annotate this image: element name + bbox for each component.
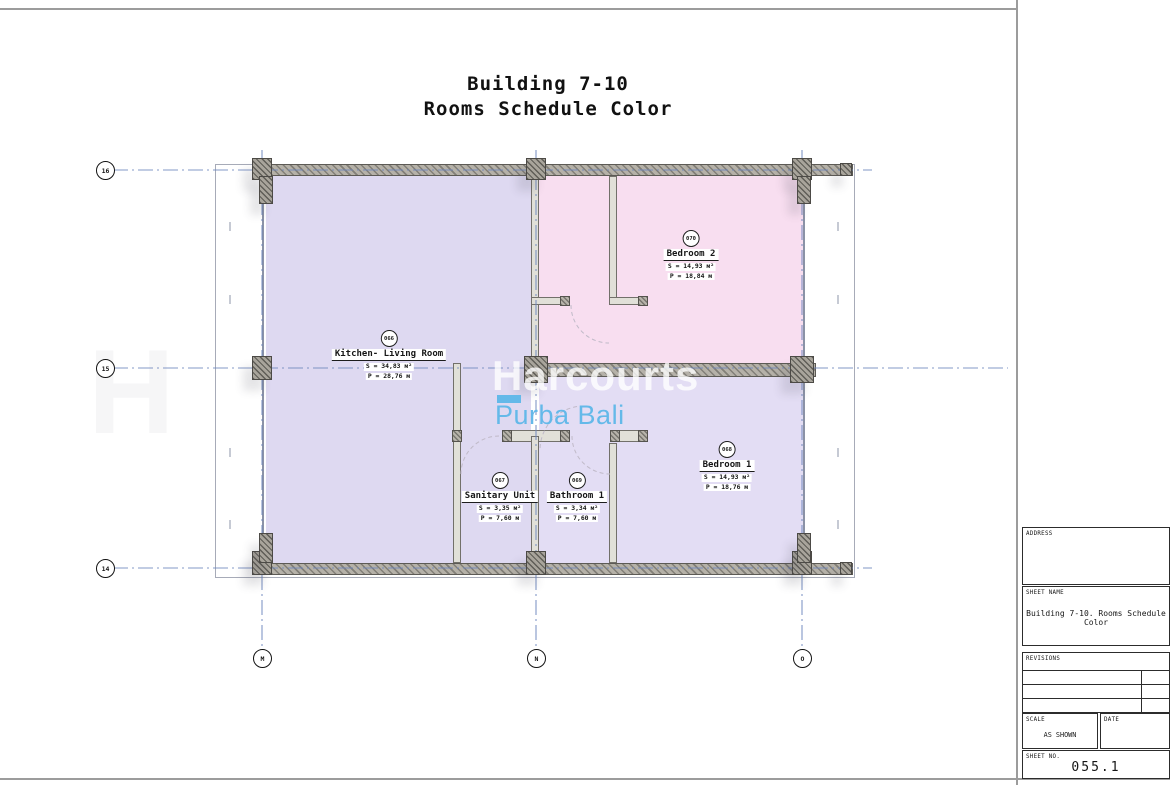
room-perimeter: P = 18,84 м — [668, 273, 714, 281]
grid-bubble-M-label: M — [261, 655, 265, 663]
room-name: Bedroom 1 — [700, 460, 755, 472]
column — [840, 163, 852, 176]
grid-bubble-16: 16 — [96, 161, 115, 180]
column — [526, 551, 546, 575]
drawing-title-line1: Building 7-10 — [387, 72, 709, 97]
room-area: S = 3,34 м² — [554, 505, 600, 513]
room-name: Bedroom 2 — [664, 249, 719, 261]
harcourts-watermark: Harcourts — [492, 352, 699, 400]
room-label-bedroom-1: 068 Bedroom 1 S = 14,93 м² P = 18,76 м — [700, 441, 755, 491]
room-area: S = 3,35 м² — [477, 505, 523, 513]
drawing-title-line2: Rooms Schedule Color — [387, 97, 709, 122]
room-perimeter: P = 28,76 м — [366, 373, 412, 381]
column — [797, 533, 811, 563]
room-number-badge: 067 — [491, 472, 508, 489]
room-name: Bathroom 1 — [547, 491, 607, 503]
room-number-badge: 068 — [719, 441, 736, 458]
room-number-badge: 070 — [683, 230, 700, 247]
room-number-badge: 069 — [569, 472, 586, 489]
room-area: S = 34,83 м² — [364, 363, 414, 371]
grid-bubble-M: M — [253, 649, 272, 668]
room-name: Kitchen- Living Room — [332, 349, 446, 361]
column — [259, 176, 273, 204]
purba-bali-watermark: Purba Bali — [495, 400, 625, 431]
column — [790, 356, 814, 383]
grid-bubble-16-label: 16 — [102, 167, 110, 175]
room-name: Sanitary Unit — [462, 491, 538, 503]
room-perimeter: P = 18,76 м — [704, 484, 750, 492]
column — [252, 356, 272, 380]
drawing-sheet: Building 7-10 Rooms Schedule Color H — [0, 0, 1170, 785]
column — [526, 158, 546, 180]
grid-bubble-N: N — [527, 649, 546, 668]
grid-bubble-14: 14 — [96, 559, 115, 578]
grid-bubble-N-label: N — [535, 655, 539, 663]
room-label-bathroom-1: 069 Bathroom 1 S = 3,34 м² P = 7,60 м — [547, 472, 607, 522]
room-number-badge: 066 — [381, 330, 398, 347]
room-label-kitchen-living: 066 Kitchen- Living Room S = 34,83 м² P … — [332, 330, 446, 380]
room-area: S = 14,93 м² — [666, 263, 716, 271]
room-label-bedroom-2: 070 Bedroom 2 S = 14,93 м² P = 18,84 м — [664, 230, 719, 280]
column — [840, 562, 852, 575]
grid-bubble-15: 15 — [96, 359, 115, 378]
room-perimeter: P = 7,60 м — [479, 515, 521, 523]
door-swing-bedroom2 — [571, 305, 609, 343]
room-area: S = 14,93 м² — [702, 474, 752, 482]
grid-bubble-O: O — [793, 649, 812, 668]
room-label-sanitary-unit: 067 Sanitary Unit S = 3,35 м² P = 7,60 м — [462, 472, 538, 522]
column — [797, 176, 811, 204]
grid-bubble-14-label: 14 — [102, 565, 110, 573]
room-perimeter: P = 7,60 м — [556, 515, 598, 523]
door-swing-bathroom — [572, 436, 610, 474]
drawing-title: Building 7-10 Rooms Schedule Color — [387, 72, 709, 122]
door-swing-sanitary — [461, 436, 499, 474]
grid-bubble-15-label: 15 — [102, 365, 110, 373]
grid-bubble-O-label: O — [801, 655, 805, 663]
column — [259, 533, 273, 563]
